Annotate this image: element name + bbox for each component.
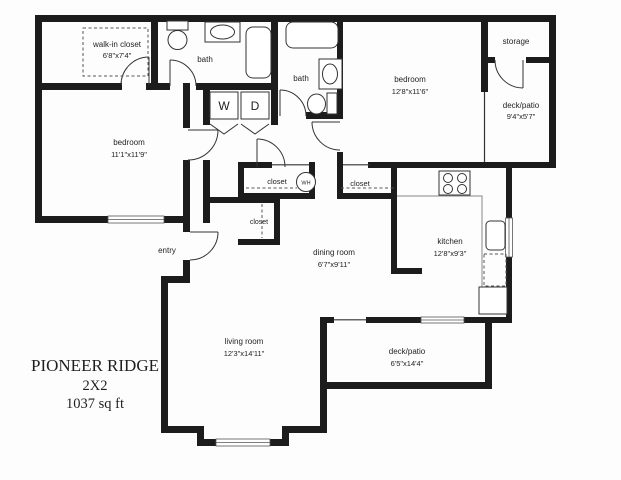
- floor-plan-drawing: walk-in closet 6'8"x7'4" bath bath stora…: [0, 0, 621, 480]
- bath1-label: bath: [197, 55, 213, 64]
- storage-label: storage: [503, 37, 530, 46]
- bifold-doors-icon: [210, 124, 269, 134]
- kitchen-sink-icon: [486, 221, 505, 250]
- sliding-doors: [272, 92, 485, 320]
- plan-title: PIONEER RIDGE: [31, 356, 159, 375]
- toilet-icon-bath2: [308, 93, 338, 114]
- fridge-icon: [479, 287, 507, 314]
- bath1-door: [170, 60, 196, 86]
- walkin-closet-label: walk-in closet: [92, 40, 142, 49]
- deck-window: [421, 317, 464, 323]
- bedroom1-label: bedroom: [113, 138, 145, 147]
- entry-closet-label: closet: [250, 219, 268, 226]
- bath2-label: bath: [293, 74, 309, 83]
- bath2-door: [280, 90, 306, 116]
- toilet-icon-bath1: [167, 21, 188, 50]
- dining-room-label: dining room: [313, 248, 355, 257]
- kitchen-label: kitchen: [437, 237, 462, 246]
- floor-plan-page: walk-in closet 6'8"x7'4" bath bath stora…: [0, 0, 621, 480]
- dishwasher-icon: [484, 254, 506, 286]
- hall-closet1-label: closet: [267, 177, 288, 186]
- kitchen-window: [506, 218, 513, 257]
- bedroom1-dims: 11'1"x11'9": [111, 150, 147, 159]
- dining-room-dims: 6'7"x9'11": [318, 260, 351, 269]
- dryer-label: D: [251, 99, 260, 113]
- entry-door: [190, 232, 218, 260]
- deck-patio-lower-dims: 6'5"x14'4": [391, 359, 424, 368]
- deck-patio-upper-dims: 9'4"x5'7": [507, 112, 536, 121]
- stove-icon: [439, 171, 470, 195]
- bedroom1-door: [188, 130, 218, 160]
- living-room-dims: 12'3"x14'11": [224, 349, 265, 358]
- title-block: PIONEER RIDGE 2X2 1037 sq ft: [31, 356, 159, 412]
- hall-closet2-label: closet: [350, 179, 371, 188]
- bedroom2-door: [312, 122, 340, 150]
- walkin-closet-door: [121, 57, 149, 85]
- sink-icon-bath2: [319, 59, 342, 89]
- walkin-closet-dims: 6'8"x7'4": [103, 51, 132, 60]
- deck-patio-upper-label: deck/patio: [503, 101, 540, 110]
- storage-door: [495, 60, 523, 88]
- deck-patio-lower-label: deck/patio: [389, 347, 426, 356]
- water-heater-label: WH: [301, 181, 310, 187]
- entry-label: entry: [158, 246, 176, 255]
- bathtub-icon-bath1: [246, 27, 271, 78]
- washer-label: W: [218, 99, 230, 113]
- bedroom2-label: bedroom: [394, 75, 426, 84]
- plan-unit-type: 2X2: [83, 378, 108, 394]
- bedroom2-dims: 12'8"x11'6": [392, 87, 429, 96]
- bathtub-icon-bath2: [286, 22, 338, 48]
- sink-icon-bath1: [205, 22, 240, 42]
- bay-window: [216, 439, 270, 446]
- bedroom1-window: [108, 216, 164, 223]
- kitchen-dims: 12'8"x9'3": [434, 249, 467, 258]
- living-room-label: living room: [225, 337, 264, 346]
- plan-area: 1037 sq ft: [66, 396, 124, 412]
